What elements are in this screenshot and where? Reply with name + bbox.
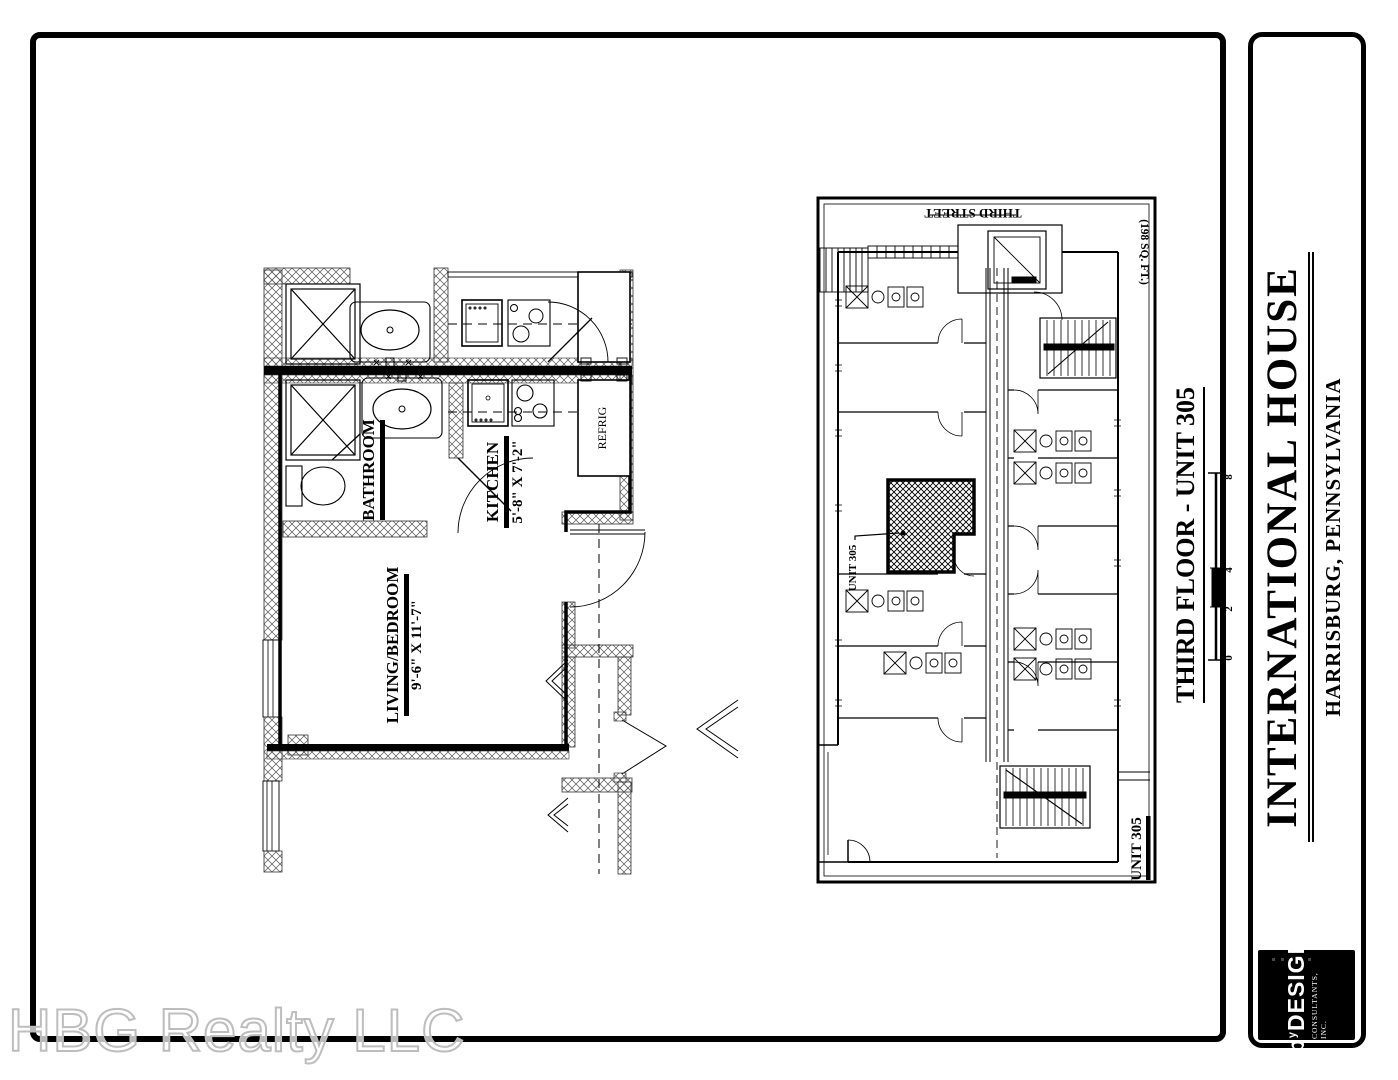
unit-305-detail-plan: REFRIG xyxy=(263,268,738,874)
room-partitions xyxy=(838,343,1118,730)
scale-tick-8: 8 xyxy=(1223,474,1235,480)
area-label: (198 SQ. FT.) xyxy=(1138,219,1150,285)
graphic-scale-bar: 8 4 2 0 xyxy=(1208,473,1235,661)
refrigerator: REFRIG xyxy=(578,375,630,476)
overall-plan-title: UNIT 305 xyxy=(1129,817,1145,881)
party-wall-north xyxy=(264,358,632,383)
scale-tick-0: 0 xyxy=(1223,655,1235,661)
unit-305-callout: UNIT 305 xyxy=(847,544,859,591)
refrig-label: REFRIG xyxy=(595,406,609,449)
stove xyxy=(512,380,554,426)
logo-name: byDESIGN xyxy=(1285,937,1308,1053)
sheet-drawing-title: THIRD FLOOR - UNIT 305 xyxy=(1173,410,1209,680)
watermark: HBG Realty LLC xyxy=(8,996,466,1065)
stairs-top xyxy=(1040,318,1116,378)
toilet xyxy=(286,466,345,506)
corridor xyxy=(986,268,1008,858)
third-street-label: THIRD STREET xyxy=(924,206,1021,221)
entry-door xyxy=(570,530,645,607)
scale-tick-4: 4 xyxy=(1223,567,1235,573)
project-location: HARRISBURG, PENNSYLVANIA xyxy=(1321,377,1346,716)
adjacent-unit-fixtures xyxy=(286,272,632,367)
window xyxy=(263,640,280,717)
elevator xyxy=(958,225,1062,293)
third-floor-overall-plan: THIRD STREET (198 SQ. FT.) xyxy=(818,198,1155,882)
unit-305-highlight xyxy=(888,480,974,572)
logo-tagline: CONSULTANTS, INC. xyxy=(1310,951,1328,1039)
shower xyxy=(286,380,360,460)
project-title-block: INTERNATIONAL HOUSE HARRISBURG, PENNSYLV… xyxy=(1260,277,1346,817)
stairs-bottom xyxy=(1000,766,1150,828)
kitchen-dimension: 5'-8" X 7'-2" xyxy=(510,440,526,523)
drawing-sheet: REFRIG xyxy=(0,0,1398,1080)
bathroom-label: BATHROOM xyxy=(359,419,378,521)
kitchen-sink xyxy=(468,380,508,426)
opposite-unit-door xyxy=(622,720,666,774)
project-title: INTERNATIONAL HOUSE xyxy=(1261,252,1314,842)
design-firm-logo-text: byDESIGN CONSULTANTS, INC. xyxy=(1271,951,1341,1039)
living-bedroom-dimension: 9'-6" X 11'-7" xyxy=(409,600,425,690)
kitchen-label: KITCHEN xyxy=(483,441,502,522)
living-bedroom-label: LIVING/BEDROOM xyxy=(383,567,402,724)
scale-tick-2: 2 xyxy=(1223,606,1235,612)
window xyxy=(263,781,279,851)
window-ticks xyxy=(835,300,1121,706)
